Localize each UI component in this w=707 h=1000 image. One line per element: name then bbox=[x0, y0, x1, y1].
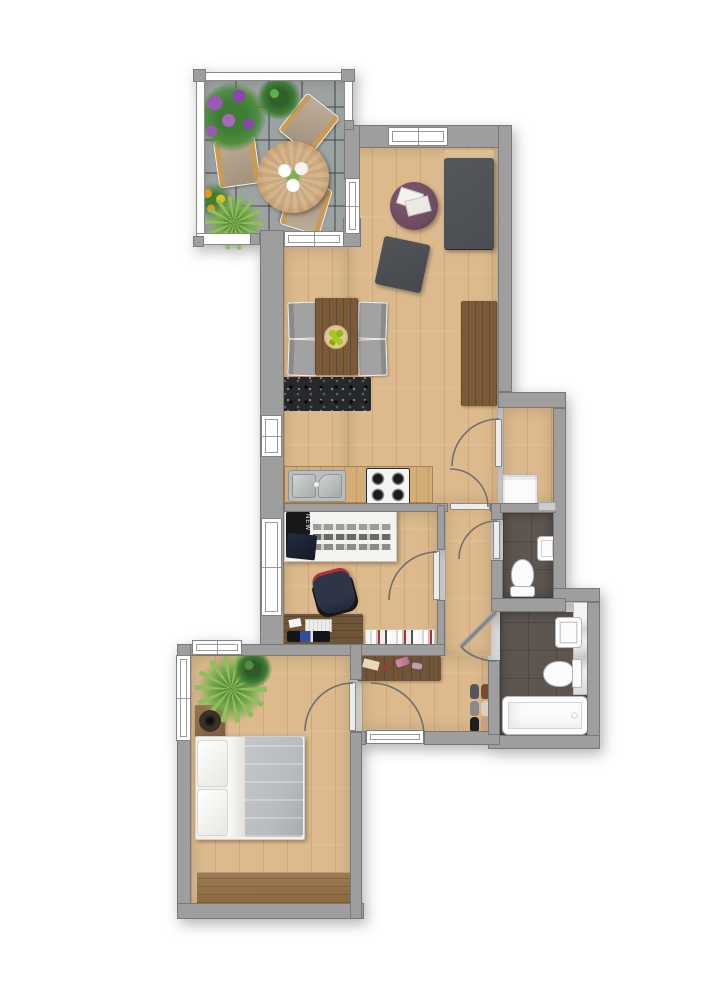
sideboard bbox=[461, 301, 497, 406]
wall bbox=[491, 598, 566, 612]
entrance-door bbox=[366, 730, 424, 744]
threshold bbox=[538, 502, 556, 511]
bed-sheet-fold bbox=[228, 737, 245, 837]
terrace-railing-bottom bbox=[196, 233, 258, 245]
shoe bbox=[470, 717, 479, 732]
skyline-print bbox=[313, 513, 391, 556]
sink-basin-right bbox=[318, 474, 342, 498]
terrace-railing-left bbox=[196, 72, 205, 244]
white-flower-centerpiece bbox=[272, 156, 314, 198]
bedroom-door-leaf bbox=[349, 682, 356, 731]
laundry-door-leaf bbox=[495, 419, 502, 467]
apples bbox=[327, 328, 345, 346]
railing-post bbox=[193, 236, 204, 247]
hallway-floor-vertical bbox=[445, 503, 491, 656]
wall bbox=[177, 903, 364, 919]
dining-chair bbox=[287, 302, 317, 340]
bed-pillow bbox=[197, 740, 228, 787]
wc-toilet-tank bbox=[510, 586, 535, 597]
bedroom-side-window bbox=[176, 655, 191, 741]
speaker-disc bbox=[199, 710, 221, 732]
wall bbox=[344, 125, 360, 180]
kitchen-door-leaf bbox=[450, 503, 490, 510]
wardrobe bbox=[197, 872, 350, 903]
bath-toilet-tank bbox=[572, 659, 582, 688]
railing-post bbox=[341, 69, 355, 82]
shoe bbox=[470, 701, 479, 716]
terrace-glass-door-side bbox=[345, 178, 360, 234]
bath-washbasin bbox=[555, 617, 582, 648]
bathtub-drain bbox=[571, 712, 578, 719]
sofa bbox=[444, 158, 494, 250]
apartment-plan: NEW YORK bbox=[0, 0, 707, 1000]
wall bbox=[284, 503, 448, 512]
terrace-glass-door bbox=[284, 231, 344, 247]
wall bbox=[350, 644, 362, 680]
dining-chair bbox=[287, 339, 317, 377]
wall bbox=[437, 505, 445, 550]
wc-door-leaf bbox=[493, 521, 500, 559]
railing-post bbox=[193, 69, 206, 82]
dining-chair bbox=[357, 339, 387, 377]
speckled-rug bbox=[282, 377, 371, 411]
railing-post bbox=[250, 233, 260, 245]
dining-chair bbox=[357, 302, 387, 340]
cosmetics bbox=[412, 662, 423, 669]
wall bbox=[498, 125, 512, 392]
laptop bbox=[287, 631, 330, 642]
bath-toilet-bowl bbox=[543, 661, 574, 687]
wall bbox=[350, 732, 362, 919]
office-door-leaf bbox=[433, 551, 440, 600]
wall bbox=[488, 735, 600, 749]
bed-duvet bbox=[245, 737, 303, 837]
terrace-railing-top bbox=[196, 72, 353, 81]
floor-plan-canvas: NEW YORK bbox=[0, 0, 707, 1000]
wall bbox=[488, 660, 500, 735]
bed-pillow bbox=[197, 789, 228, 836]
bedroom-top-window bbox=[192, 640, 242, 655]
wall bbox=[587, 602, 600, 749]
wc-toilet-bowl bbox=[511, 559, 534, 589]
living-room-side-window bbox=[261, 415, 282, 457]
ottoman bbox=[374, 236, 430, 294]
living-room-window bbox=[388, 127, 448, 146]
office-window bbox=[261, 518, 282, 616]
railing-post bbox=[344, 120, 354, 130]
gas-stove bbox=[366, 468, 410, 505]
navy-blanket bbox=[286, 533, 317, 561]
shoe bbox=[470, 684, 479, 699]
sink-faucet bbox=[313, 481, 320, 488]
wall bbox=[498, 392, 566, 408]
